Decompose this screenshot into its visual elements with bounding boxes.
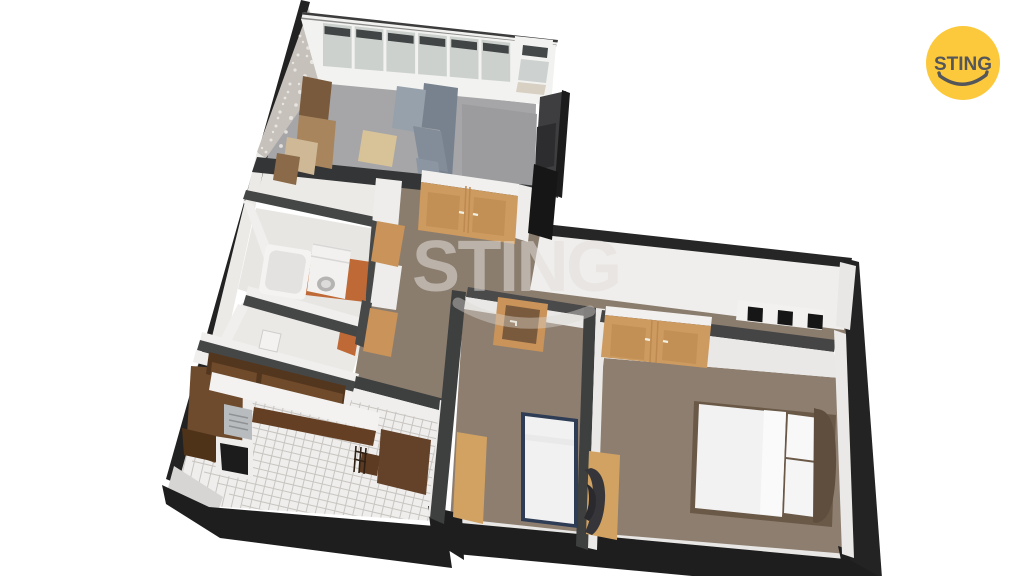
svg-text:STING: STING [412,227,620,307]
svg-text:STING: STING [934,54,992,75]
